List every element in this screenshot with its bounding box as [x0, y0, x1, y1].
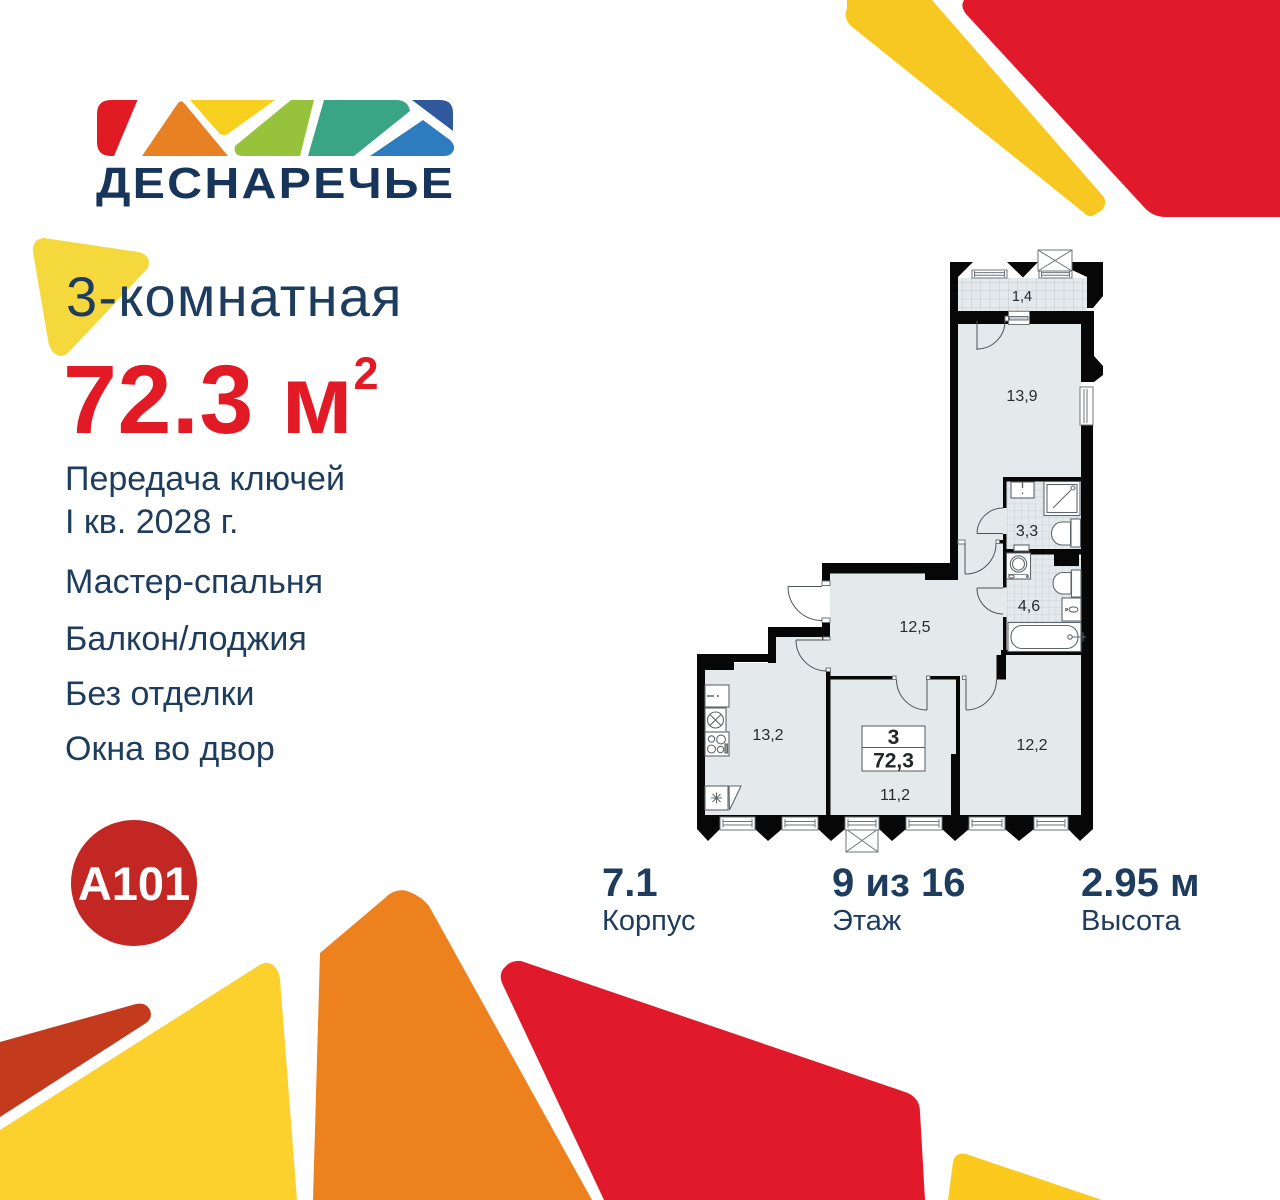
svg-text:1,4: 1,4 — [1012, 289, 1032, 305]
svg-text:13,2: 13,2 — [752, 727, 783, 744]
svg-text:4,6: 4,6 — [1018, 598, 1040, 615]
svg-text:72,3: 72,3 — [873, 750, 914, 773]
svg-text:11,2: 11,2 — [880, 787, 910, 804]
svg-text:13,9: 13,9 — [1006, 388, 1037, 405]
svg-text:12,2: 12,2 — [1016, 737, 1047, 754]
svg-text:12,5: 12,5 — [899, 619, 930, 636]
svg-text:3: 3 — [888, 726, 900, 749]
svg-text:3,3: 3,3 — [1016, 523, 1038, 540]
